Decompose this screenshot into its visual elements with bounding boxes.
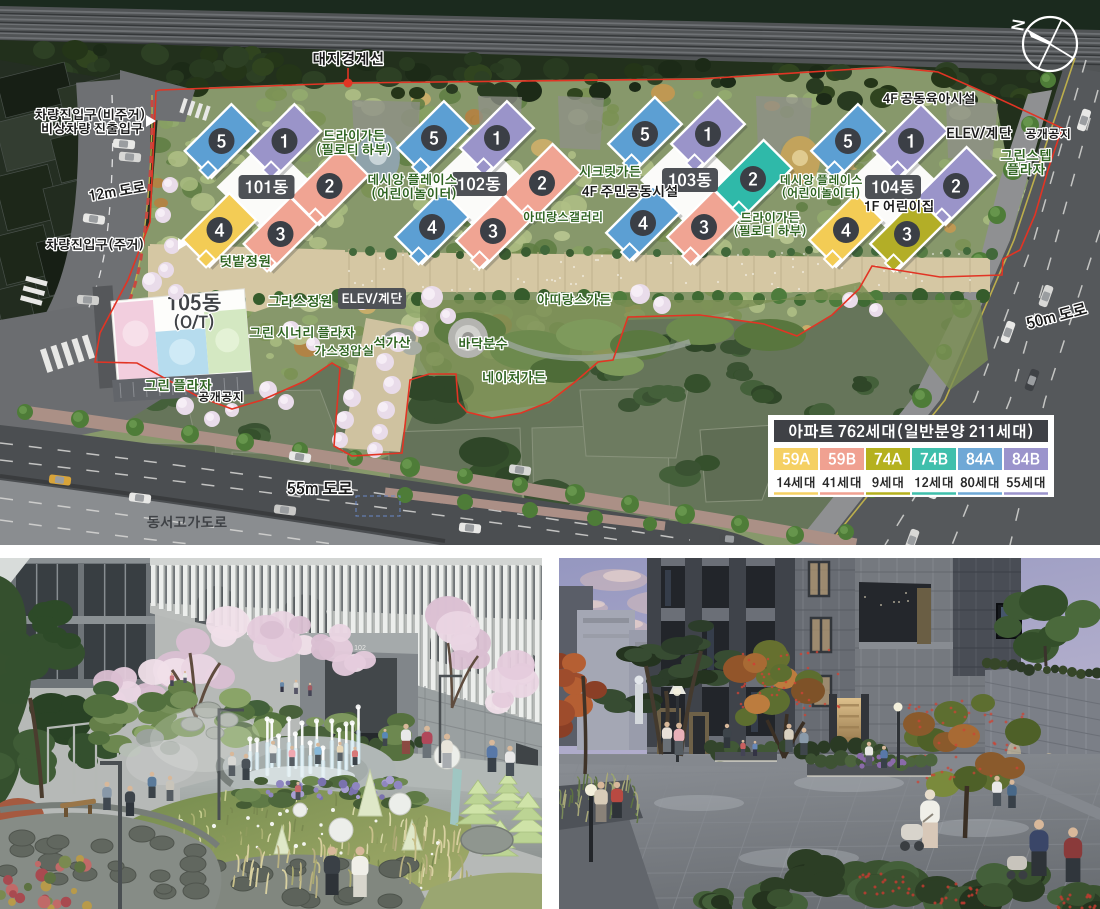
- svg-text:102: 102: [354, 645, 366, 652]
